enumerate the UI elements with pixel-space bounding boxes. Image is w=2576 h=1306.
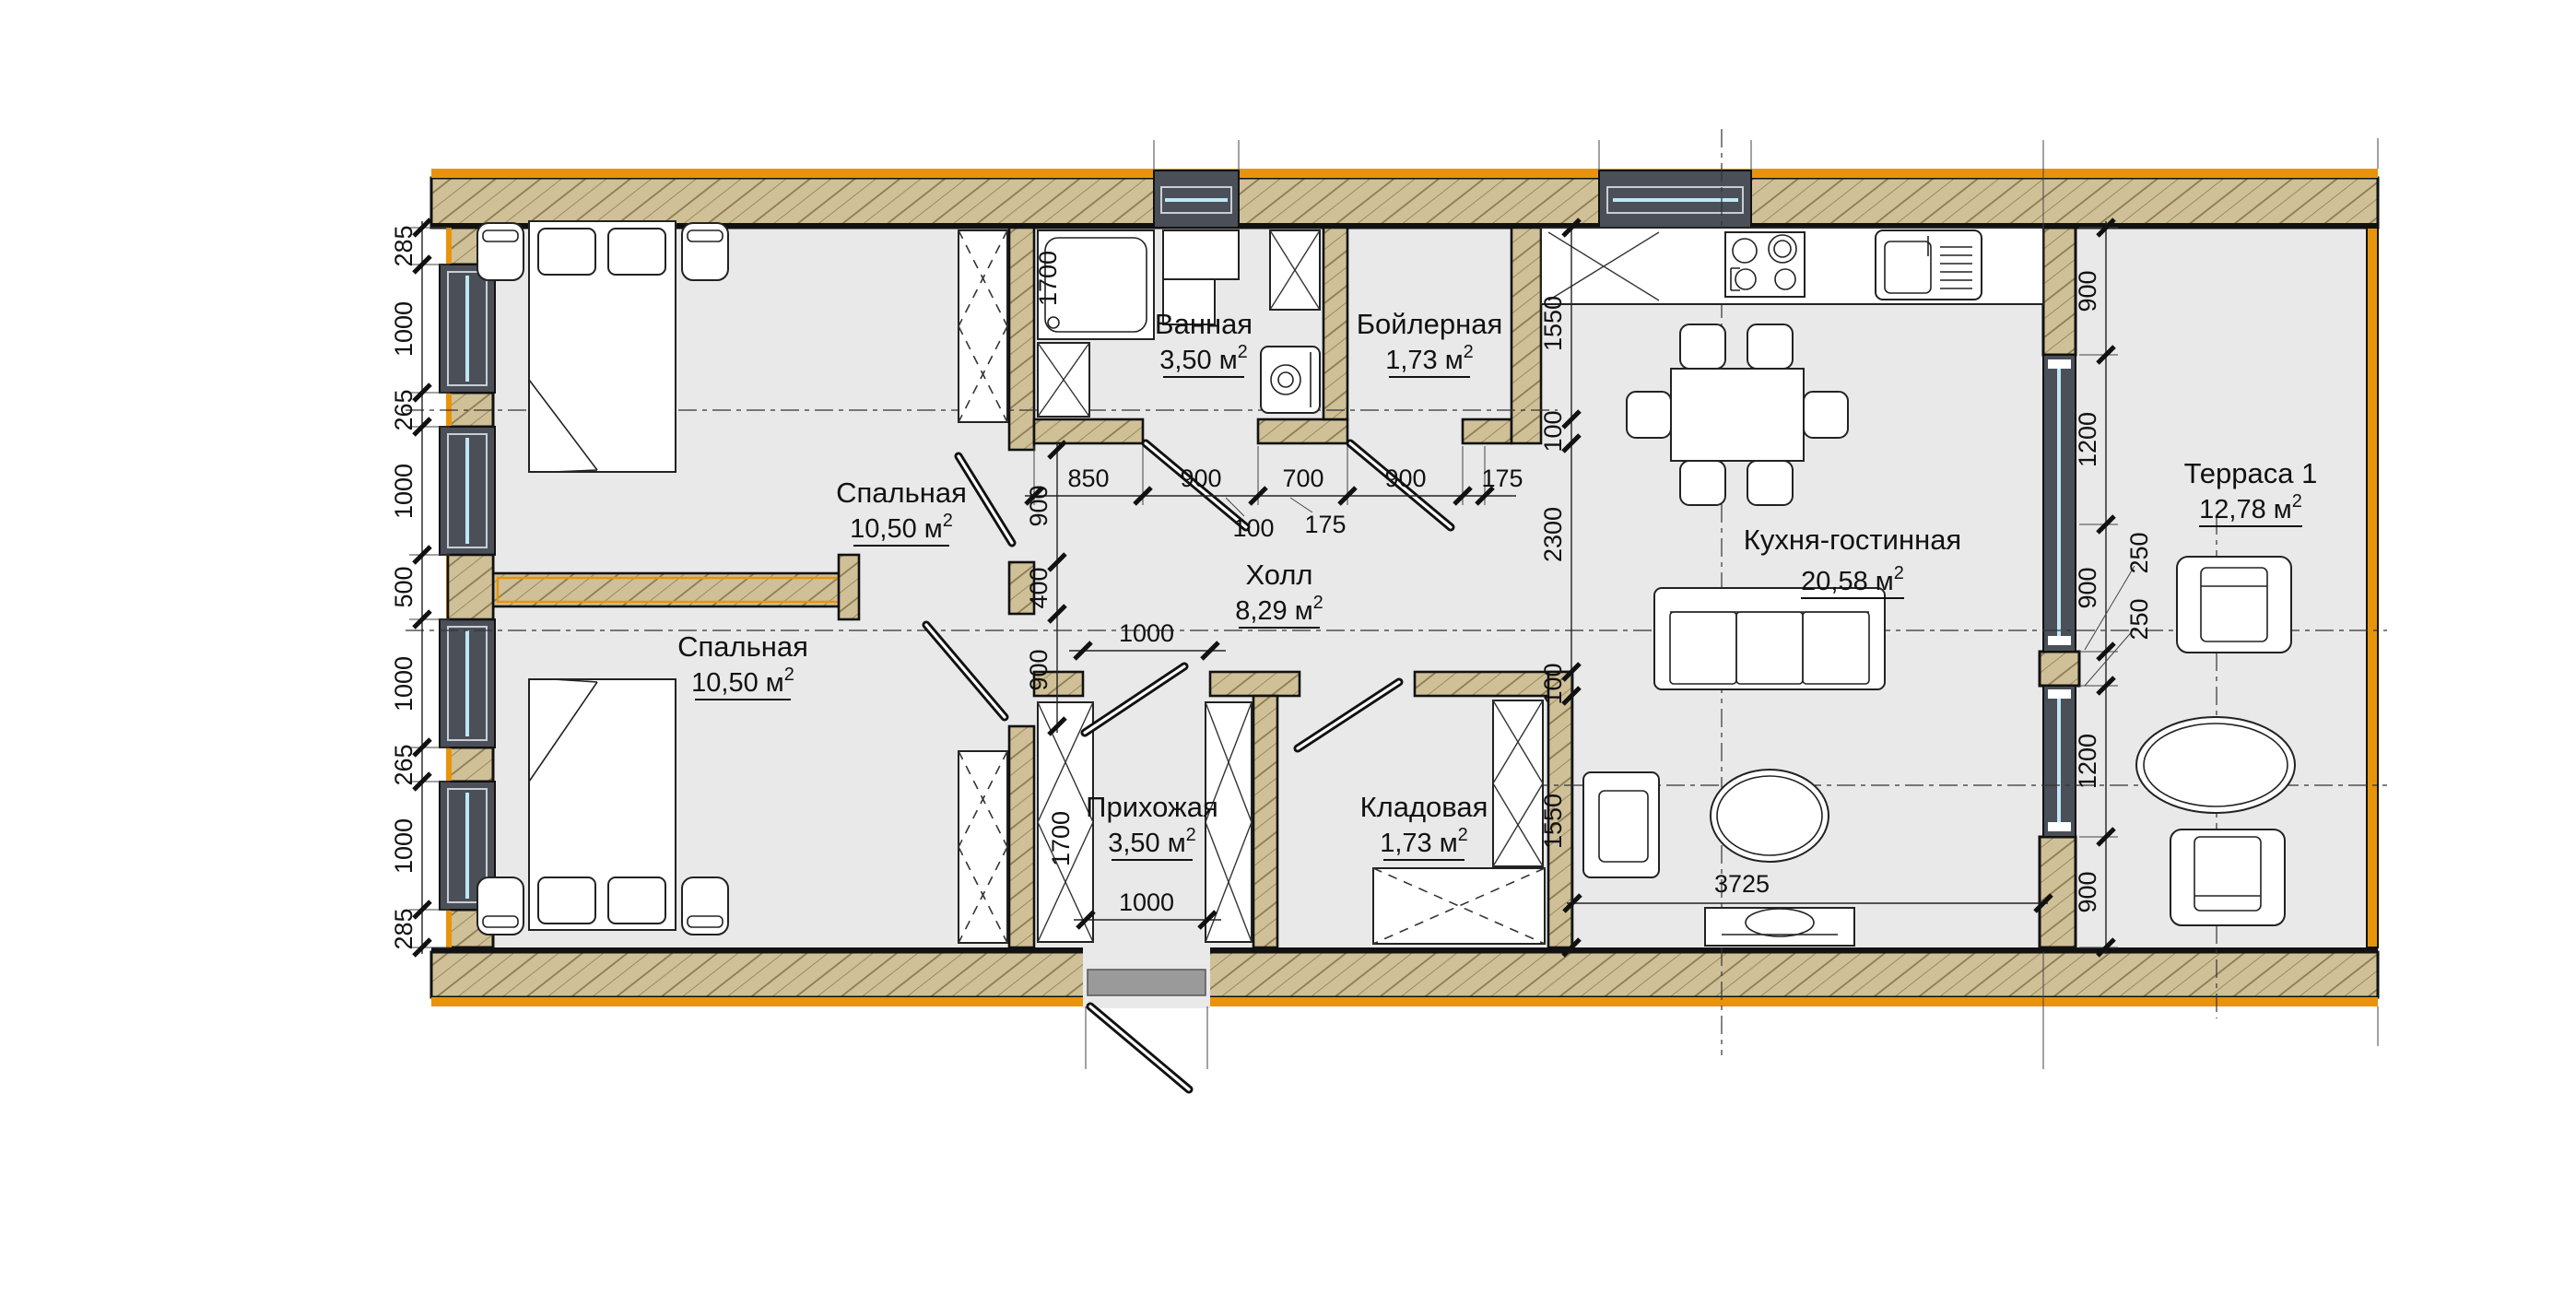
dim-175: 175 [1481,465,1523,492]
pillow [608,877,665,924]
svg-text:1,73 м2: 1,73 м2 [1385,342,1474,375]
bottom-wall [431,944,2378,1008]
cooktop [1725,232,1805,297]
door-entrance [1090,1006,1189,1089]
dim-left-1000d: 1000 [390,818,418,874]
wall-bed1-hall [1009,228,1034,450]
armchair-terrace-top [2177,557,2291,653]
kitchen-sink [1876,230,1982,300]
dim-entry-door-1000: 1000 [1119,888,1174,916]
floor-plan-page: 285 1000 265 1000 500 1000 265 1000 285 … [0,0,2576,1306]
dim-left-1000c: 1000 [390,656,418,712]
dim-left-1000: 1000 [390,301,418,357]
dim-callout-175: 175 [1304,511,1346,538]
wall-entry-storage [1253,696,1277,947]
shower-tray [1038,343,1089,417]
dim-850: 850 [1067,465,1109,492]
dim-right-1200: 1200 [2074,412,2101,467]
svg-text:3,50 м2: 3,50 м2 [1159,342,1248,375]
chair [1627,392,1671,438]
svg-text:Кухня-гостинная: Кухня-гостинная [1744,524,1961,556]
svg-text:Терраса 1: Терраса 1 [2184,457,2318,489]
dim-1550: 1550 [1539,296,1567,351]
dim-left-265b: 265 [390,744,418,785]
wall-boiler-kitchen [1511,228,1541,443]
dining-table [1671,369,1804,461]
window-2 [440,427,495,555]
dim-right-900b: 900 [2074,567,2101,608]
chair [1680,324,1725,369]
dim-left-285: 285 [390,225,418,266]
pillow [538,877,595,924]
dim-left-285b: 285 [390,908,418,949]
chair [1804,392,1848,438]
dim-left-1000b: 1000 [390,464,418,519]
dim-100b: 100 [1539,663,1567,704]
dim-100: 100 [1539,410,1567,452]
dim-1550b: 1550 [1539,794,1567,849]
svg-text:3,50 м2: 3,50 м2 [1108,825,1196,858]
window-1 [440,265,495,393]
chair [1747,461,1793,505]
dim-3725: 3725 [1714,870,1770,898]
pillow [538,229,595,275]
chair [1747,324,1793,369]
coffee-table [1711,770,1829,862]
svg-text:Спальная: Спальная [677,630,808,663]
wardrobe-storage [1493,700,1543,866]
dim-callout-250b: 250 [2125,598,2153,640]
dim-bathtub-1700: 1700 [1034,251,1062,306]
svg-text:10,50 м2: 10,50 м2 [691,665,794,698]
dim-900-bath-door: 900 [1180,465,1221,492]
vanity-cabinet [1163,230,1239,279]
pillow [608,229,665,275]
terrace-table [2136,717,2295,813]
wardrobe-bedroom-1 [959,230,1007,422]
dim-bed2-door-900: 900 [1025,649,1053,690]
svg-text:20,58 м2: 20,58 м2 [1801,563,1904,596]
sofa [1654,588,1885,689]
middle-pier-250 [2040,652,2079,686]
chair [1680,461,1725,505]
svg-text:Кладовая: Кладовая [1360,791,1488,823]
window-bath-top [1154,171,1239,228]
svg-text:Ванная: Ванная [1155,308,1253,340]
svg-text:Прихожая: Прихожая [1086,791,1218,823]
armchair-terrace-bottom [2170,829,2285,925]
wall-bath-boiler [1323,228,1347,419]
sliding-door-upper [2043,355,2076,652]
window-3 [440,619,495,747]
dim-right-900c: 900 [2074,871,2101,912]
dim-right-1200b: 1200 [2074,734,2101,789]
svg-text:1,73 м2: 1,73 м2 [1380,825,1468,858]
svg-text:Спальная: Спальная [836,477,967,509]
svg-text:Холл: Холл [1245,559,1312,591]
dim-callout-100: 100 [1232,514,1274,542]
dim-left-265: 265 [390,389,418,430]
cabinet-x [1270,230,1320,310]
dim-wardrobe-1700: 1700 [1047,811,1075,866]
wall-bed2-hall [1009,726,1034,947]
mid-wall-pier [839,555,859,619]
entrance-threshold [1088,970,1206,995]
sliding-door-lower [2043,686,2076,837]
storage-zone [1373,868,1545,944]
svg-text:8,29 м2: 8,29 м2 [1235,593,1323,626]
dim-left-500: 500 [390,566,418,607]
dim-callout-250: 250 [2125,532,2153,573]
dim-700: 700 [1282,465,1323,492]
svg-text:10,50 м2: 10,50 м2 [850,511,953,544]
dim-bed1-door-900: 900 [1025,485,1053,526]
terrace-edge [2367,228,2378,947]
window-kitchen-top [1599,171,1751,228]
top-wall [431,169,2378,229]
washing-machine [1261,347,1320,413]
svg-text:12,78 м2: 12,78 м2 [2199,491,2302,524]
dim-400: 400 [1025,567,1053,608]
svg-text:Бойлерная: Бойлерная [1357,308,1503,340]
floor-plan-drawing: 285 1000 265 1000 500 1000 265 1000 285 … [0,0,2576,1306]
wardrobe-bedroom-2 [959,751,1007,943]
dim-2300: 2300 [1539,507,1567,562]
tv-stand [1705,908,1854,946]
dim-right-900: 900 [2074,270,2101,312]
dim-hall-door-1000: 1000 [1119,619,1174,647]
dim-900-boiler-door: 900 [1384,465,1426,492]
armchair-living [1583,772,1659,877]
